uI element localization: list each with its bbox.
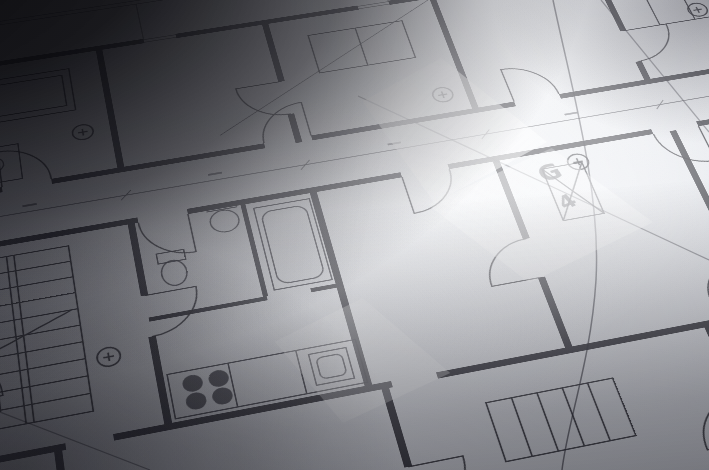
stove-burner bbox=[181, 373, 204, 393]
blueprint-photo: G 4 bbox=[0, 0, 709, 470]
staircase-left bbox=[0, 246, 93, 434]
sink bbox=[208, 208, 241, 234]
stove-burner bbox=[210, 386, 234, 406]
stove-burner bbox=[184, 391, 207, 411]
stove-burner bbox=[207, 369, 230, 389]
table bbox=[308, 21, 415, 73]
striped-table bbox=[485, 378, 635, 462]
table bbox=[0, 69, 75, 127]
